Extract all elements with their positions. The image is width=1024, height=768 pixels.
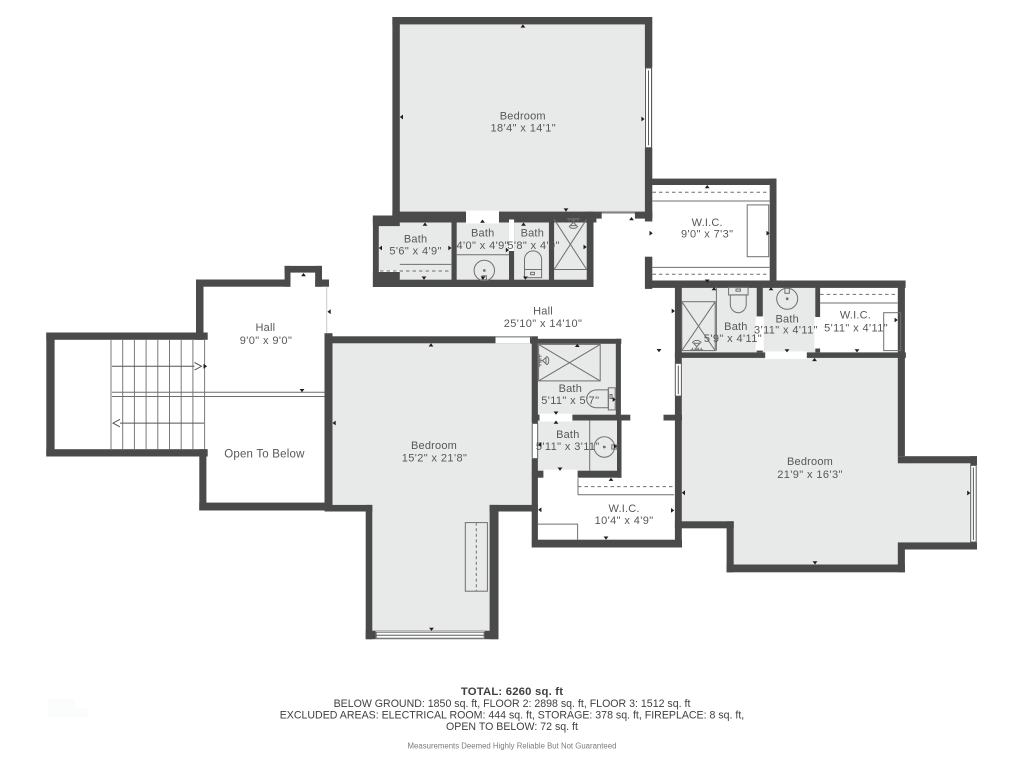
svg-text:5'11" x 3'11": 5'11" x 3'11" (536, 441, 600, 453)
svg-text:Bath: Bath (775, 314, 798, 326)
svg-text:10'4" x 4'9": 10'4" x 4'9" (595, 515, 654, 527)
svg-text:W.I.C.: W.I.C. (840, 309, 871, 321)
svg-text:5'6" x 4'9": 5'6" x 4'9" (389, 246, 442, 258)
svg-text:Bedroom: Bedroom (500, 110, 546, 122)
svg-text:3'11" x 4'11": 3'11" x 4'11" (754, 325, 818, 337)
svg-text:EXCLUDED AREAS: ELECTRICAL ROO: EXCLUDED AREAS: ELECTRICAL ROOM: 444 sq.… (280, 709, 745, 721)
svg-text:Bath: Bath (556, 429, 579, 441)
svg-text:15'2" x 21'8": 15'2" x 21'8" (402, 452, 468, 464)
svg-text:9'0" x 7'3": 9'0" x 7'3" (681, 229, 734, 241)
svg-text:Open To Below: Open To Below (224, 449, 305, 461)
svg-text:9'0" x 9'0": 9'0" x 9'0" (240, 335, 293, 347)
svg-text:Bedroom: Bedroom (787, 456, 833, 468)
svg-text:4'0" x 4'9": 4'0" x 4'9" (456, 240, 509, 252)
svg-text:5'11" x 5'7": 5'11" x 5'7" (541, 395, 599, 407)
svg-text:Hall: Hall (533, 305, 553, 317)
svg-text:W.I.C.: W.I.C. (692, 217, 723, 229)
svg-text:BELOW GROUND: 1850 sq. ft, FLO: BELOW GROUND: 1850 sq. ft, FLOOR 2: 2898… (334, 698, 691, 710)
svg-text:Bath: Bath (521, 228, 544, 240)
svg-text:Bath: Bath (559, 383, 582, 395)
svg-text:W.I.C.: W.I.C. (609, 503, 640, 515)
svg-text:21'9" x 16'3": 21'9" x 16'3" (777, 469, 843, 481)
svg-text:Bedroom: Bedroom (411, 440, 457, 452)
svg-text:Measurements Deemed Highly Rel: Measurements Deemed Highly Reliable But … (408, 741, 617, 750)
svg-text:Hall: Hall (256, 322, 276, 334)
svg-text:Bath: Bath (471, 228, 494, 240)
svg-text:TOTAL: 6260 sq. ft: TOTAL: 6260 sq. ft (461, 686, 563, 698)
svg-text:Bath: Bath (404, 234, 427, 246)
svg-text:OPEN TO BELOW: 72 sq. ft: OPEN TO BELOW: 72 sq. ft (446, 721, 578, 733)
svg-text:Bath: Bath (724, 321, 747, 333)
svg-text:25'10" x 14'10": 25'10" x 14'10" (504, 318, 583, 330)
svg-text:18'4" x 14'1": 18'4" x 14'1" (491, 122, 557, 134)
svg-text:5'8" x 4'9": 5'8" x 4'9" (507, 240, 560, 252)
svg-text:5'11" x 4'11": 5'11" x 4'11" (824, 322, 888, 334)
